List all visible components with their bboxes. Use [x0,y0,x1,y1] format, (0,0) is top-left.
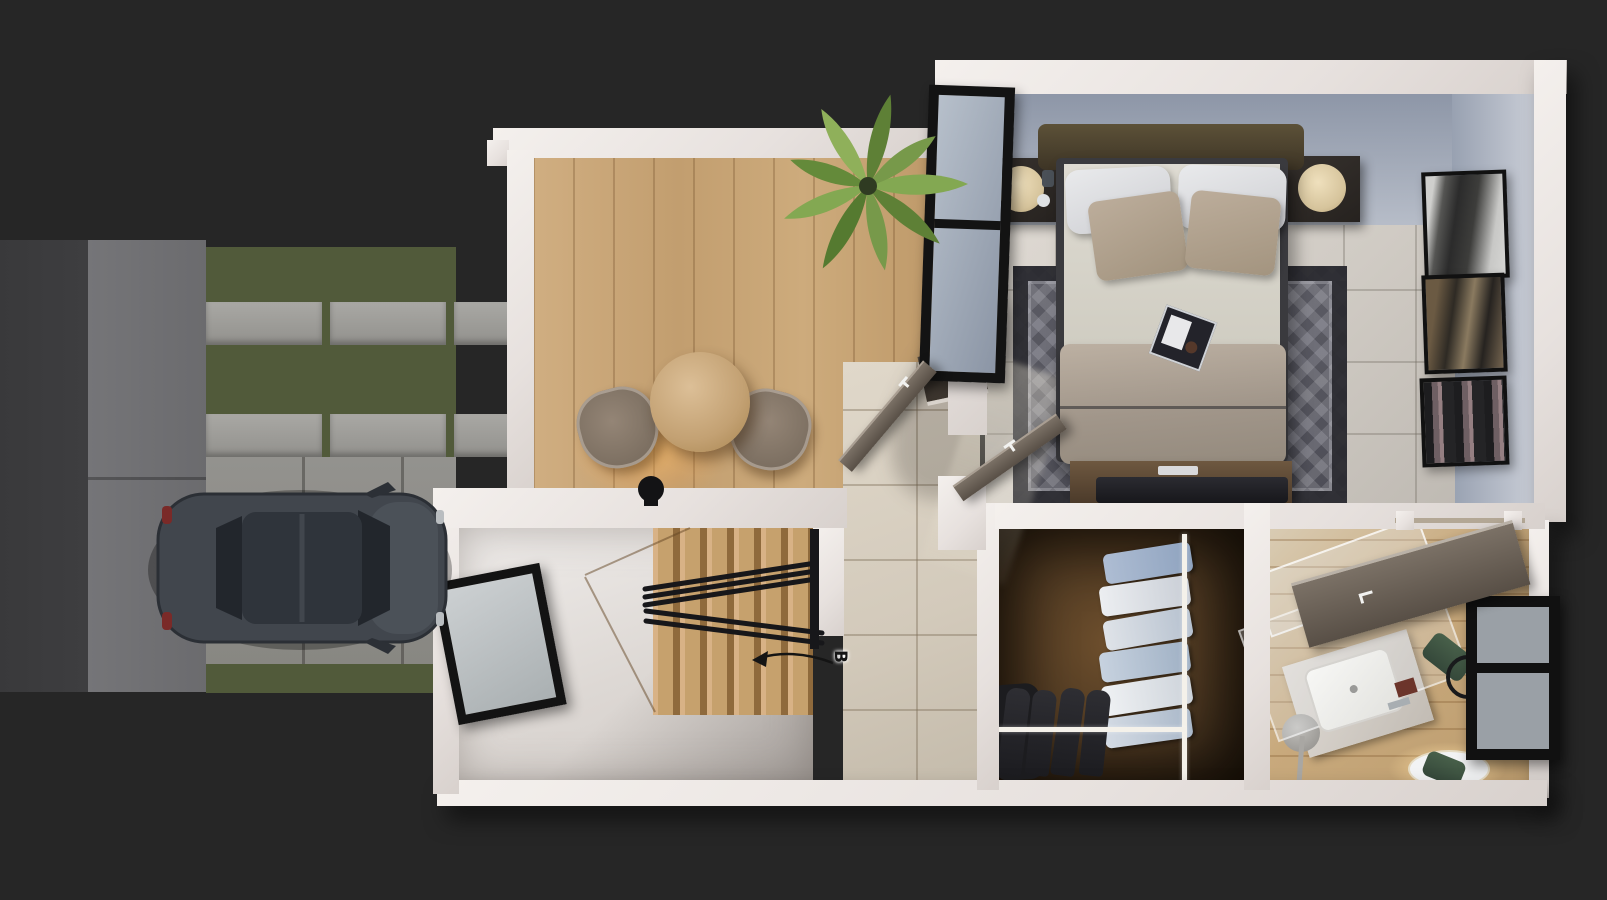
grass-strip [206,247,456,302]
floorplan-render: B [0,0,1607,900]
grass-strip [206,664,456,693]
annotation-label: B [826,650,850,674]
wall-stairs-east [813,528,844,636]
door-handle [901,380,910,388]
wall-art-middle [1421,273,1507,375]
wall-bedroom-south [995,503,1545,529]
closet-rod-vertical [1182,534,1187,784]
bedside-lamp-right [1298,164,1346,212]
concrete-paver [330,302,446,345]
wall-corner-step [487,140,509,166]
door-handle [1007,442,1015,452]
sidewalk [88,240,206,692]
bedroom-window [919,85,1015,384]
closet-rod-horizontal [998,727,1186,732]
accent-pillow [1087,190,1189,282]
wall-dining-west [507,150,534,507]
wall-art-bottom [1419,376,1509,468]
wall-art-top [1421,170,1510,281]
remote-item [1158,466,1198,475]
concrete-paver [206,414,322,457]
grass-strip [206,345,456,414]
bedside-cup [1042,170,1054,187]
driveway [206,457,456,664]
table-lamp [636,476,666,506]
wall-closet-east [1244,503,1270,790]
wall-east-outer [1534,60,1566,522]
stair-steps [653,527,813,715]
duvet-fold [1060,406,1286,409]
accent-pillow [1184,190,1282,277]
sidewalk-joint [88,477,206,480]
concrete-paver [206,302,322,345]
wall-bedroom-north [935,60,1567,94]
bathroom-window [1466,596,1560,760]
dining-table [650,352,750,452]
road [0,240,90,692]
slider-track-block [1396,511,1414,530]
paver-row [206,302,456,345]
bedside-mug [1037,194,1050,207]
concrete-paver [330,414,446,457]
front-yard [206,247,456,693]
paver-row [206,414,456,457]
wall-dining-north [493,128,950,158]
console-tray [1096,477,1288,503]
